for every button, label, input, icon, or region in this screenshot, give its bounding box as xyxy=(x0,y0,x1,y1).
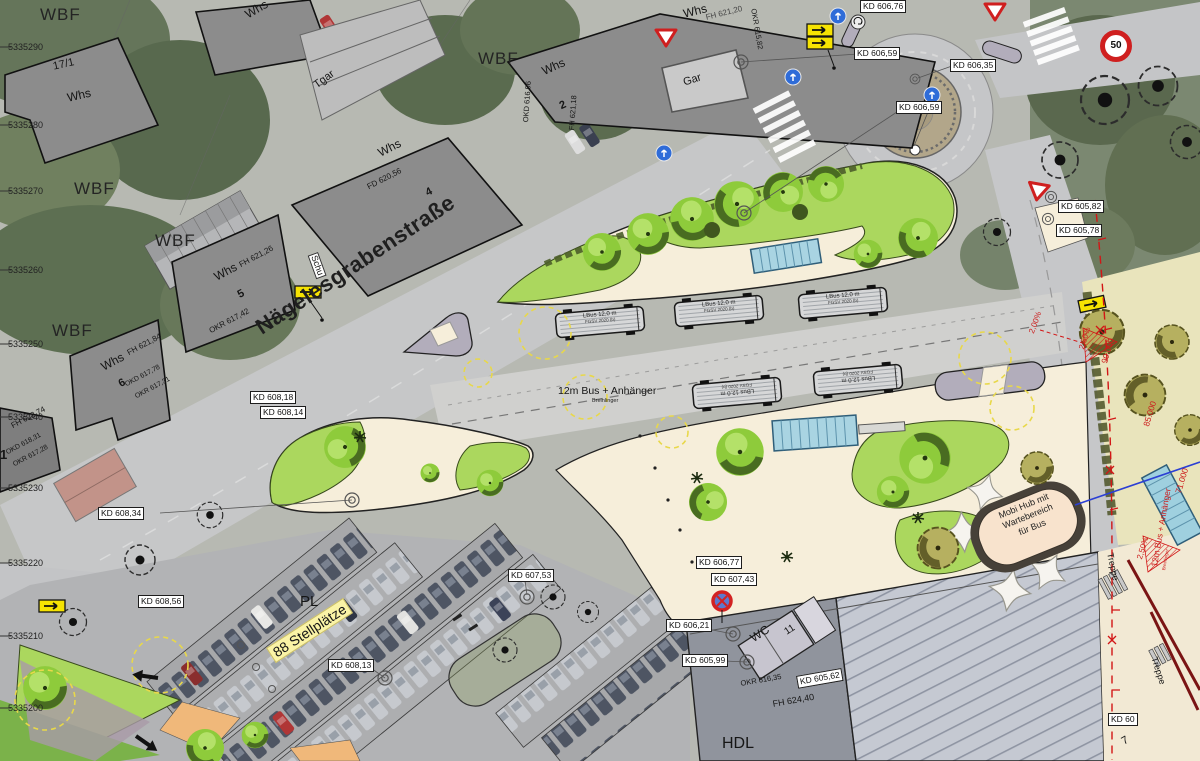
level-label: KD 605,82 xyxy=(1058,200,1104,213)
zone-wbf: WBF xyxy=(478,50,519,67)
zone-wbf: WBF xyxy=(74,180,115,197)
zone-wbf: WBF xyxy=(52,322,93,339)
zone-pl: PL xyxy=(300,594,318,609)
bus-clearance-note: 12m Bus + Anhänger xyxy=(558,386,656,397)
level-label: KD 606,21 xyxy=(666,619,712,632)
site-plan-canvas: 5335290 5335280 5335270 5335260 5335250 … xyxy=(0,0,1200,761)
grid-label: 5335270 xyxy=(8,187,43,196)
plan-drawing xyxy=(0,0,1200,761)
level-label: KD 606,59 xyxy=(896,101,942,114)
grid-label: 5335250 xyxy=(8,340,43,349)
level-label: KD 607,43 xyxy=(711,573,757,586)
speed-limit-sign: 50 xyxy=(1100,30,1132,62)
grid-label: 5335230 xyxy=(8,484,43,493)
grid-label: 5335260 xyxy=(8,266,43,275)
zone-wbf: WBF xyxy=(40,6,81,23)
level-label: KD 60 xyxy=(1108,713,1138,726)
level-label: KD 608,56 xyxy=(138,595,184,608)
level-label: KD 608,13 xyxy=(328,659,374,672)
level-label: KD 606,76 xyxy=(860,0,906,13)
level-label: KD 606,77 xyxy=(696,556,742,569)
level-label: KD 608,18 xyxy=(250,391,296,404)
zone-hdl: HDL xyxy=(722,736,754,752)
level-label: KD 605,99 xyxy=(682,654,728,667)
grid-label: 5335280 xyxy=(8,121,43,130)
zone-wbf: WBF xyxy=(155,232,196,249)
grid-label: 5335290 xyxy=(8,43,43,52)
engineer-note: Breinlinger xyxy=(592,399,618,405)
grid-label: 5335220 xyxy=(8,559,43,568)
grid-label: 5335200 xyxy=(8,704,43,713)
level-label: KD 606,35 xyxy=(950,59,996,72)
level-label: KD 606,59 xyxy=(854,47,900,60)
level-label: KD 605,78 xyxy=(1056,224,1102,237)
level-label: KD 608,14 xyxy=(260,406,306,419)
level-label: KD 607,53 xyxy=(508,569,554,582)
level-label: KD 608,34 xyxy=(98,507,144,520)
grid-label: 5335210 xyxy=(8,632,43,641)
